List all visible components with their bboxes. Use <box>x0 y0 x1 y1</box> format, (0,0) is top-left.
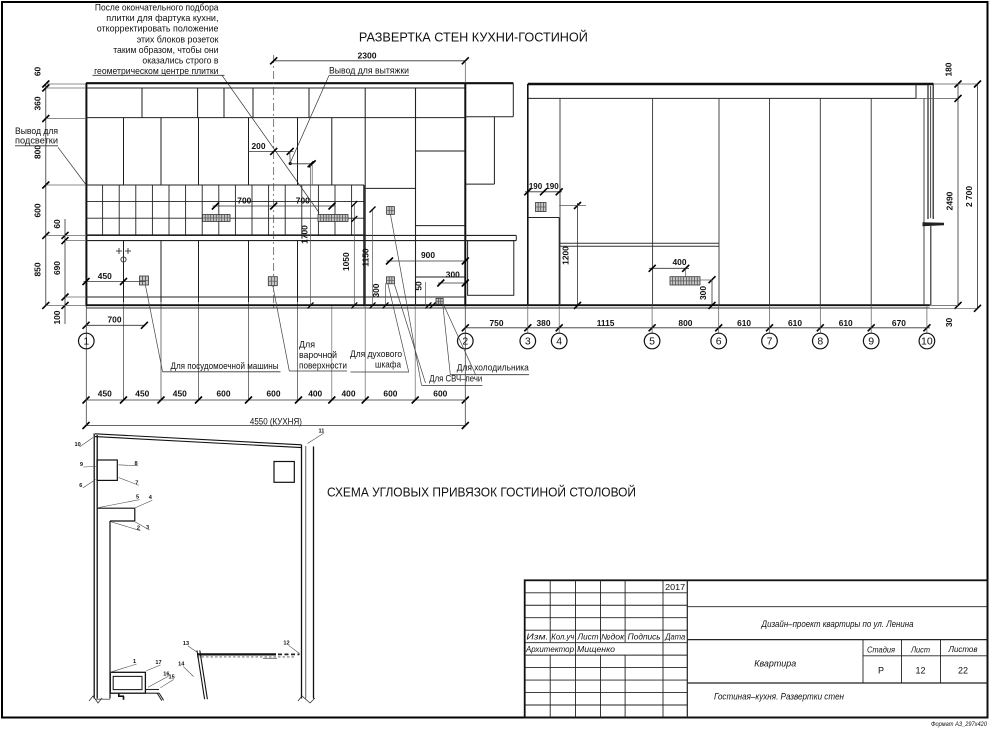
svg-text:10: 10 <box>921 336 933 348</box>
svg-text:600: 600 <box>383 389 397 399</box>
svg-text:СХЕМА УГЛОВЫХ ПРИВЯЗОК ГОСТИНО: СХЕМА УГЛОВЫХ ПРИВЯЗОК ГОСТИНОЙ СТОЛОВОЙ <box>327 484 636 499</box>
svg-text:2: 2 <box>462 336 468 348</box>
svg-text:геометрическом центре плитки: геометрическом центре плитки <box>94 66 218 76</box>
svg-text:22: 22 <box>958 666 968 676</box>
svg-text:7: 7 <box>767 336 773 348</box>
svg-text:1200: 1200 <box>561 246 571 265</box>
svg-text:17: 17 <box>155 660 161 666</box>
svg-text:Гостиная–кухня. Развертки стен: Гостиная–кухня. Развертки стен <box>714 692 844 702</box>
svg-text:5: 5 <box>649 336 655 348</box>
svg-text:610: 610 <box>737 318 751 328</box>
svg-text:Для посудомоечной машины: Для посудомоечной машины <box>171 361 279 371</box>
svg-text:2300: 2300 <box>357 50 376 60</box>
svg-text:180: 180 <box>943 62 953 76</box>
svg-text:1700: 1700 <box>299 225 309 244</box>
svg-text:60: 60 <box>33 67 43 77</box>
svg-text:2 700: 2 700 <box>964 186 974 207</box>
svg-text:690: 690 <box>52 261 62 275</box>
svg-text:варочной: варочной <box>299 350 337 360</box>
svg-text:450: 450 <box>135 389 149 399</box>
svg-text:700: 700 <box>108 314 122 324</box>
svg-text:2490: 2490 <box>945 191 955 210</box>
svg-text:Листов: Листов <box>948 645 979 654</box>
svg-text:190: 190 <box>545 182 559 191</box>
svg-text:После окончательного подбора: После окончательного подбора <box>95 2 219 12</box>
svg-text:2: 2 <box>137 526 140 532</box>
svg-text:380: 380 <box>537 318 551 328</box>
svg-text:Формат А3_297х420: Формат А3_297х420 <box>931 721 987 728</box>
svg-text:Квартира: Квартира <box>754 658 796 669</box>
svg-text:850: 850 <box>33 262 43 276</box>
svg-text:Для духового: Для духового <box>350 349 402 359</box>
svg-text:30: 30 <box>944 318 954 328</box>
svg-text:Для: Для <box>299 340 315 350</box>
svg-text:450: 450 <box>98 271 112 281</box>
svg-text:600: 600 <box>433 389 447 399</box>
svg-text:600: 600 <box>33 203 43 217</box>
svg-text:11: 11 <box>318 428 324 434</box>
svg-text:900: 900 <box>421 250 435 260</box>
svg-text:15: 15 <box>168 675 174 681</box>
svg-text:2017: 2017 <box>665 583 685 592</box>
svg-text:670: 670 <box>892 318 906 328</box>
svg-text:поверхности: поверхности <box>299 360 347 370</box>
svg-text:плитки для фартука кухни,: плитки для фартука кухни, <box>106 13 218 23</box>
svg-text:200: 200 <box>252 141 266 151</box>
svg-text:таким образом, чтобы они: таким образом, чтобы они <box>113 45 218 55</box>
svg-text:450: 450 <box>173 389 187 399</box>
svg-text:14: 14 <box>178 662 185 668</box>
svg-text:12: 12 <box>915 666 925 676</box>
svg-text:300: 300 <box>698 286 708 300</box>
svg-text:750: 750 <box>490 318 504 328</box>
svg-text:Лист: Лист <box>910 645 930 654</box>
svg-text:4550 (КУХНЯ): 4550 (КУХНЯ) <box>250 416 302 426</box>
svg-text:700: 700 <box>296 195 310 205</box>
svg-text:400: 400 <box>308 389 322 399</box>
svg-text:7: 7 <box>135 480 138 486</box>
svg-text:800: 800 <box>33 145 43 159</box>
svg-text:9: 9 <box>868 336 874 348</box>
svg-text:Изм.: Изм. <box>526 632 548 641</box>
svg-text:450: 450 <box>98 389 112 399</box>
svg-text:Р: Р <box>878 666 884 676</box>
svg-text:300: 300 <box>446 270 460 280</box>
svg-text:6: 6 <box>716 336 722 348</box>
svg-text:100: 100 <box>52 310 62 324</box>
svg-text:Стадия: Стадия <box>867 645 896 654</box>
svg-text:360: 360 <box>33 96 43 110</box>
svg-text:3: 3 <box>525 336 531 348</box>
svg-text:1050: 1050 <box>341 252 351 271</box>
svg-text:50: 50 <box>414 281 424 291</box>
svg-text:610: 610 <box>839 318 853 328</box>
svg-text:190: 190 <box>529 182 543 191</box>
svg-text:60: 60 <box>52 219 62 229</box>
svg-text:Мищенко: Мищенко <box>577 645 616 654</box>
svg-text:Для холодильника: Для холодильника <box>457 362 530 372</box>
svg-text:этих блоков розеток: этих блоков розеток <box>137 34 220 44</box>
svg-text:300: 300 <box>371 283 381 297</box>
svg-text:8: 8 <box>817 336 823 348</box>
svg-text:Подпись: Подпись <box>628 632 661 641</box>
svg-text:1150: 1150 <box>361 248 371 267</box>
svg-text:оказались строго в: оказались строго в <box>142 56 218 66</box>
svg-text:Архитектор: Архитектор <box>525 645 575 654</box>
svg-text:700: 700 <box>237 195 251 205</box>
svg-text:600: 600 <box>217 389 231 399</box>
svg-text:Лист: Лист <box>576 632 598 641</box>
svg-text:4: 4 <box>556 336 562 348</box>
svg-text:откорректировать положение: откорректировать положение <box>97 24 219 34</box>
svg-text:Дата: Дата <box>664 632 685 641</box>
svg-text:800: 800 <box>678 318 692 328</box>
svg-text:610: 610 <box>788 318 802 328</box>
svg-text:1: 1 <box>83 336 89 348</box>
svg-text:600: 600 <box>267 389 281 399</box>
svg-text:подсветки: подсветки <box>15 136 58 146</box>
svg-text:№док: №док <box>601 632 625 641</box>
svg-text:400: 400 <box>673 257 687 267</box>
svg-text:Вывод для вытяжки: Вывод для вытяжки <box>329 65 409 75</box>
svg-text:6: 6 <box>79 483 82 489</box>
svg-text:Кол.уч: Кол.уч <box>551 632 574 641</box>
svg-text:9: 9 <box>80 462 83 468</box>
svg-text:РАЗВЕРТКА СТЕН КУХНИ-ГОСТИНОЙ: РАЗВЕРТКА СТЕН КУХНИ-ГОСТИНОЙ <box>359 30 588 45</box>
svg-text:шкафа: шкафа <box>375 359 402 369</box>
svg-text:1115: 1115 <box>597 318 615 328</box>
svg-text:Вывод для: Вывод для <box>15 126 58 136</box>
svg-text:400: 400 <box>342 389 356 399</box>
svg-text:Дизайн–проект квартиры по ул.: Дизайн–проект квартиры по ул. Ленина <box>761 619 914 629</box>
